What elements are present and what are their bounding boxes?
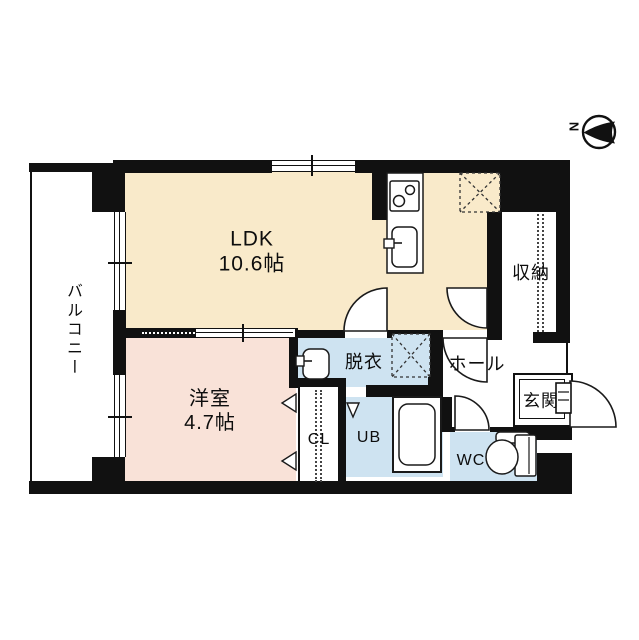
washbasin-icon bbox=[303, 349, 329, 379]
stove-burner-large bbox=[394, 196, 405, 207]
door-entrance bbox=[570, 381, 616, 427]
unit-bath-label: UB bbox=[357, 430, 381, 446]
hall-label: ホール bbox=[449, 355, 506, 373]
kitchen-sink-icon bbox=[392, 227, 417, 267]
stove-icon bbox=[390, 181, 419, 211]
stove-burner-small bbox=[406, 186, 415, 195]
closet-label: CL bbox=[308, 432, 330, 448]
dressing-label: 脱衣 bbox=[345, 353, 383, 371]
door-ldk-hall-upper bbox=[447, 288, 487, 328]
storage-label: 収納 bbox=[512, 264, 550, 282]
floor-plan: バルコニー LDK 10.6帖 洋室 4.7帖 脱衣 ホール 収納 玄関 CL … bbox=[0, 0, 639, 640]
closet-chevron-bottom bbox=[282, 452, 296, 470]
washer-space-icon bbox=[392, 334, 430, 377]
ldk-area-label: 10.6帖 bbox=[219, 254, 286, 275]
door-ldk-dressing bbox=[344, 288, 387, 331]
balcony-label: バルコニー bbox=[64, 283, 80, 378]
refrigerator-space-icon bbox=[460, 173, 500, 212]
washbasin-faucet-icon bbox=[296, 356, 304, 366]
ldk-label: LDK bbox=[230, 229, 274, 250]
kitchen-faucet-icon bbox=[384, 239, 394, 248]
western-room-area-label: 4.7帖 bbox=[184, 413, 236, 433]
fixture-layer bbox=[0, 0, 639, 640]
toilet-bowl bbox=[486, 440, 518, 474]
compass-north-label: N bbox=[568, 121, 581, 131]
western-room-label: 洋室 bbox=[189, 389, 231, 409]
door-hall-wc bbox=[455, 396, 489, 430]
closet-chevron-top bbox=[282, 394, 296, 412]
bath-door-chevron bbox=[347, 403, 359, 417]
bathtub-inner bbox=[399, 404, 435, 465]
toilet-label: WC bbox=[457, 453, 486, 469]
entrance-label: 玄関 bbox=[523, 393, 559, 410]
